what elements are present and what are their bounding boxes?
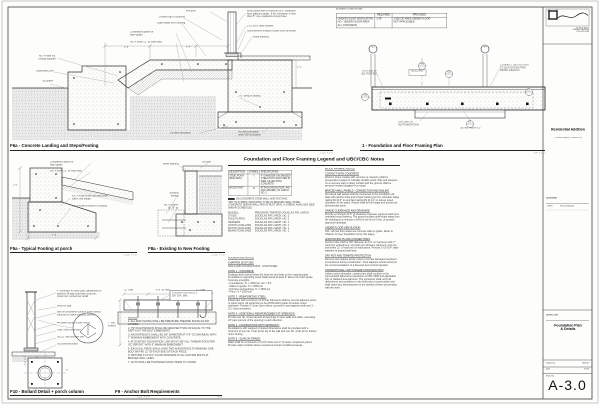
detail-scale-f6a: 1 1/2" = 1'-0" [320, 152, 333, 154]
detail-title-f5a: F5a - Typical Footing at porch [10, 246, 72, 251]
material-name: BEAMS (OAKLAND) [228, 230, 255, 233]
submittal-label: Submittal: [546, 197, 557, 200]
note-block: NOTE 3 - ADDITIONAL REINFORCEMENT AT OPE… [228, 313, 317, 322]
submittal-description: Permit Submittal [560, 205, 592, 207]
callout-label: Cement top of concrete [143, 16, 185, 19]
f9-note-item: 7. NUTS SHALL BE TIGHTENED SNUG PRIOR TO… [128, 361, 218, 364]
project-no-value: 1808.01 [570, 362, 589, 364]
f9-note-item: 4. AT EXISTING FOUNDATION, USE EPOXY-SET… [128, 341, 218, 347]
detail-title-f8a: F8a - Existing to New Footing [148, 246, 210, 251]
callout-label: (N) wall foundation under (E) foundation [238, 131, 284, 137]
note-text: Unless noted otherwise, construction sha… [325, 272, 400, 289]
title-rule [360, 150, 545, 151]
f9-note-item: 2. TIP OF EXTENSION SHALL BE GREATER THA… [128, 327, 218, 333]
callout-label: 3'-4" [186, 46, 203, 49]
callout-label: 2'-8" [124, 46, 141, 49]
sheet-title-label: Sheet Title [546, 314, 558, 317]
vent-table: REQUIRED PROVIDED UNDER FLOOR VENTILATIO… [336, 13, 447, 28]
callout-label: 12" max [124, 289, 141, 292]
note-block: ANCHOR BOLTS AND CONNECTIONS Anchor bolt… [325, 238, 400, 253]
callout-label: Expansion joint [24, 70, 53, 73]
materials-list: MUDSILL PRESSURE TREATED DOUGLAS FIR, LA… [228, 212, 320, 233]
callout-label: 2'-0" [13, 184, 26, 187]
legend-row: WOOD POST ⊙ ATTACH WOOD POST, 4X6 (OR LA… [228, 186, 291, 195]
detail-title-f6a: F6a - Concrete Landing and Steps/Footing [10, 143, 98, 148]
note-block: FOUNDATION NOTES [228, 257, 317, 260]
note-text: Anchor bolts shall be 5/8" diameter at 4… [325, 241, 400, 253]
callout-label: Weld-on cap [57, 305, 116, 308]
vent-table-caption: (N) DINING & LIVING ROOMS [336, 8, 387, 10]
f9-note-item: 1. ALL MUD PLATES SHALL BE PRESSURE TREA… [128, 320, 218, 326]
vent-row-label: UNDER FLOOR VENTILATION NO - UNDER FLOOR… [336, 17, 375, 27]
callout-label: (N) concrete porch [57, 343, 116, 346]
callout-label: No. 4 rebar at the top and at the slab's… [72, 195, 131, 201]
callout-label: CONNECT (N) FOOTING TO (E) FOOTING PER D… [500, 64, 542, 72]
note-text: Provide two No. 4 bars around all openin… [228, 316, 317, 322]
note-heading: FOUNDATION NOTES [228, 257, 317, 260]
callout-label: BOLLARD [409, 70, 426, 73]
note-text: Rebar laps with a minimum of 40 bar diam… [228, 299, 317, 311]
post-symbol-icon: ⊙ [248, 186, 260, 195]
callout-label: No. 4 rebar 12" oc each way [50, 170, 105, 173]
title-rule [115, 395, 222, 396]
material-row: BEAMS (OAKLAND) DOUGLAS FIR LARCH, NO. 1 [228, 230, 320, 233]
callout-label: No. 4 rebar 12" oc each way [130, 41, 185, 44]
notes-right-column: WOOD FRAMING NOTES CONTACT WITH CONCRETE… [325, 168, 400, 292]
note-block: CONTACT WITH CONCRETE Wood in direct con… [325, 173, 400, 188]
callout-label: Slope away from building [139, 22, 185, 25]
callout-label: No. 4 rebar ea. nosing (typical) [22, 55, 56, 61]
callout-label: (N) 12" dia concrete pier [57, 336, 116, 339]
callout-label: (E) grade [30, 80, 53, 83]
date-value: 1/7/19 [570, 368, 589, 370]
callout-label: Non-pressure treated mudsill over sill s… [247, 30, 327, 33]
project-name: Residential Addition [545, 128, 590, 132]
legend-header: Foundation and Floor Framing Legend and … [228, 156, 400, 162]
project-address: ( Private Residence, Oakland CA ) [550, 137, 586, 139]
wall-swatch-icon [228, 198, 235, 200]
callout-label: F5a [360, 94, 369, 97]
callout-label: N2 [368, 46, 378, 49]
note-block: NOTE 1 - CONCRETE: Footings shall extend… [228, 270, 317, 294]
callout-label: 2'-0" deep of footing [238, 95, 276, 98]
f9-notes: NOTES: 1. ALL MUD PLATES SHALL BE PRESSU… [128, 317, 218, 365]
note-block: NOTE 2 - REINFORCING STEEL: Rebar laps w… [228, 296, 317, 311]
callout-label: Metal flashing [253, 36, 303, 39]
title-rule [10, 150, 333, 151]
callout-label: 7" min embed [108, 322, 122, 328]
project-no-label: Project No. [546, 362, 565, 364]
note-block: CHAPTER 18 OF CBC SOILS AND FOUNDATIONS … [228, 262, 317, 268]
callout-label: Metal flashing [149, 163, 178, 166]
detail-title-plan: 1 - Foundation and Floor Framing Plan [362, 143, 443, 148]
title-rule [148, 252, 225, 253]
callout-label: B1 [524, 89, 533, 92]
text-layer: F6a - Concrete Landing and Steps/Footing… [0, 0, 600, 406]
note-text: Foundations with stepped or sloped dimen… [228, 327, 317, 336]
detail-scale-f9: NTS [217, 396, 222, 398]
callout-label: 1'-0" [38, 390, 55, 393]
notes-left-column: FOUNDATION NOTES CHAPTER 18 OF CBC SOILS… [228, 257, 317, 349]
note-block: DRY ROT AND TERMITE PROTECTION Remove an… [325, 255, 400, 267]
note-text: Provide a minimum of 6" of clearance bet… [325, 213, 400, 225]
f9-note-item: 3. ANCHOR BOLTS SHALL BE 5/8" DIAMETER A… [128, 334, 218, 340]
callout-label: No. 4 dowels @ 16" oc [149, 204, 178, 210]
f9-notes-list: 1. ALL MUD PLATES SHALL BE PRESSURE TREA… [128, 320, 218, 364]
date-label: Date [546, 368, 565, 370]
note-heading: WOOD FRAMING NOTES [325, 168, 400, 171]
legend-row: STEEL POINT (BOLLARD) ○ 4" DIAMETER GALV… [228, 174, 291, 186]
vent-required-value: 2 SF [375, 17, 392, 27]
detail-scale-plan: 1/4" = 1'-0" [534, 152, 545, 154]
vent-col-required: REQUIRED [375, 13, 392, 17]
legend-wall-item: (N) CONCRETE STEM WALL AND FOOTING [228, 198, 320, 201]
callout-label: F6a [417, 63, 426, 66]
note-text: SOILS AND FOUNDATIONS - CONTINUED [228, 265, 317, 268]
callout-label: Compacted gravel or base grade [50, 161, 96, 167]
drawing-sheet: F6a - Concrete Landing and Steps/Footing… [0, 0, 600, 406]
detail-scale-f5a: 1 1/2" = 1'-0" [124, 254, 137, 256]
title-rule [10, 252, 137, 253]
callout-label: Existing footing [149, 192, 178, 198]
legend-wall-notes: "W#" IN SYMBOL INDICATES TYPE OF BRACED … [228, 201, 320, 210]
vent-provided-value: 1/150 OF AREA UNDER FLOOR NOT APPLICABLE [392, 17, 447, 27]
f9-note-item: 5. EACH SILL PIECE SHALL HAVE TWO ANCHOR… [128, 348, 218, 354]
callout-label: 8" [66, 369, 83, 372]
callout-label: N4 [480, 46, 490, 49]
callout-label: FOUNDATION BOLTS 5/8" DIA. MIN. [172, 292, 212, 298]
detail-scale-f8a: 1 1/2" = 1'-0" [212, 254, 225, 256]
callout-label: 1'-6" [52, 234, 65, 237]
note-block: GRADE CLEARANCE AND DRAINAGE Provide a m… [325, 210, 400, 225]
sheet-number: A-3.0 [543, 377, 592, 393]
callout-label: (N) slab [202, 161, 227, 164]
note-block: BRACED WALL PANELS - CONNECTION AND NAIL… [325, 190, 400, 208]
callout-label: No. 4 rebar at bottom of footing [72, 205, 135, 208]
sheet-title: Foundation Plan & Details [543, 324, 593, 331]
note-text: Wood in direct contact with concrete or … [325, 176, 400, 188]
callout-label: F10 [444, 71, 453, 74]
legend-desc: WOOD POST [228, 186, 248, 195]
callout-label: OUTLINE OF (N) FOUNDATION [398, 121, 436, 127]
note-text: N/A - all new floor areas are concrete s… [325, 230, 400, 236]
legend-spec: ATTACH WOOD POST, 4X6 (OR LARGER), DF LA… [260, 186, 292, 195]
legend-desc: STEEL POINT (BOLLARD) [228, 174, 248, 186]
legend-spec: 4" DIAMETER GALVANIZED STEEL POST GROUTE… [260, 174, 292, 186]
note-block: UNDER FLOOR VENTILATION N/A - all new fl… [325, 227, 400, 236]
note-block: NOTE 5 - SLAB ON GRADE: Slabs shall be a… [228, 338, 317, 347]
note-text: All braced wall panels shall be connecte… [325, 193, 400, 207]
firm-address: 415 Main Street Oakland, CA 94610 t 510.… [554, 27, 589, 33]
legend-block: DESCRIPTION SYMBOL SPECIFICATION STEEL P… [228, 170, 320, 233]
note-text: Slabs shall be a minimum of 3-1/2" thick… [228, 342, 317, 348]
callout-label: Galv. insert to anchor [57, 329, 116, 332]
callout-label: Wood posts with a minimum of 8" clearanc… [247, 10, 331, 18]
note-block: NOTE 4 - FOUNDATIONS WITH SETBACKS: Foun… [228, 324, 317, 336]
callout-label: Bolt-on decorative column cover (wood co… [57, 311, 141, 317]
callout-label: 4x4 post [186, 10, 211, 13]
callout-label: (N) wall foundation [170, 132, 216, 135]
note-block: CONVENTIONAL LIGHT-FRAME CONSTRUCTION Un… [325, 269, 400, 290]
note-text: Remove and replace all dry rotted or ter… [325, 258, 400, 267]
callout-label: F9 [465, 121, 474, 124]
legend-header-rule [228, 165, 400, 166]
post-symbol-icon: ○ [248, 174, 260, 186]
callout-label: OUTLINE OF (E) FOOTING [352, 70, 377, 76]
wall-swatch-label: (N) CONCRETE STEM WALL AND FOOTING [236, 198, 287, 201]
note-block: WOOD FRAMING NOTES [325, 168, 400, 171]
callout-label: DETAIL F6a/A-3.0 [460, 127, 498, 130]
callout-label: 1'-0" [297, 66, 314, 69]
submittal-date: 1/7/19 [547, 205, 560, 207]
callout-label: 2"x2"x3/8" plate washer [247, 25, 310, 28]
note-text: Footings shall extend below the frost li… [228, 274, 317, 294]
detail-title-f9: F9 - Anchor Bolt Requirements [115, 389, 180, 394]
legend-table: DESCRIPTION SYMBOL SPECIFICATION STEEL P… [228, 170, 292, 195]
material-spec: DOUGLAS FIR LARCH, NO. 1 [255, 230, 321, 233]
callout-label: Compacted gravel or base grade [130, 31, 176, 37]
f9-note-item: 6. PROVIDE 3"x3"x1/4" PLATE WASHERS AT A… [128, 355, 218, 361]
